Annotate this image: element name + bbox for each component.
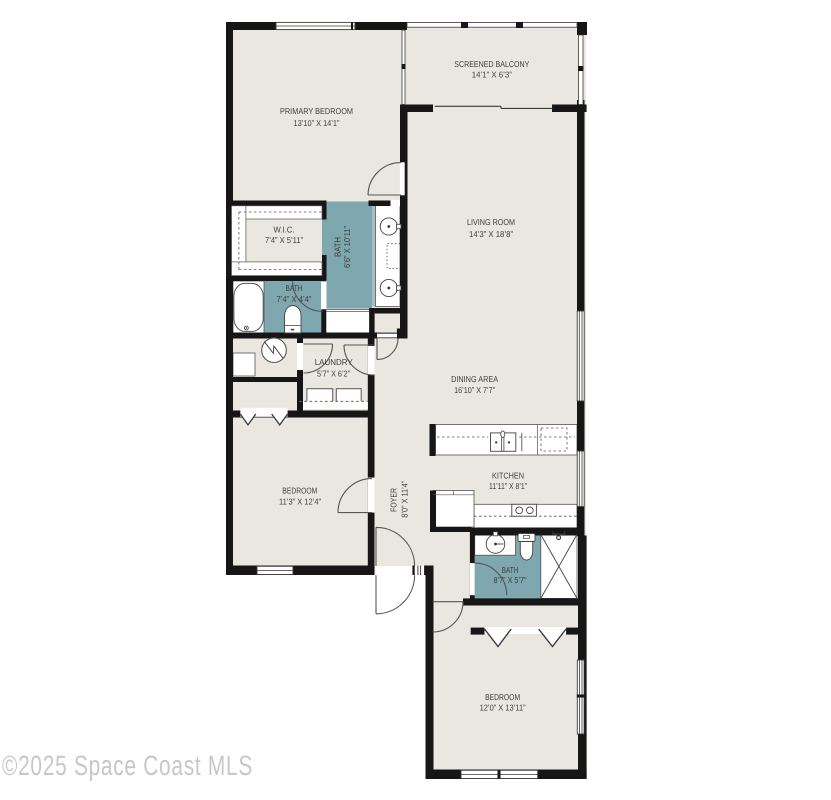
svg-text:PRIMARY BEDROOM: PRIMARY BEDROOM xyxy=(280,106,353,116)
svg-text:BEDROOM: BEDROOM xyxy=(485,692,520,702)
svg-text:14’3” X 18’8”: 14’3” X 18’8” xyxy=(469,229,513,239)
svg-text:KITCHEN: KITCHEN xyxy=(492,471,524,481)
svg-text:11’11” X 8’1”: 11’11” X 8’1” xyxy=(489,481,527,491)
svg-text:BATH: BATH xyxy=(502,565,519,575)
svg-text:6’6” X 10’11”: 6’6” X 10’11” xyxy=(342,226,352,268)
svg-text:5’7” X 6’2”: 5’7” X 6’2” xyxy=(317,368,350,378)
svg-text:BEDROOM: BEDROOM xyxy=(282,486,317,496)
svg-text:8’0” X 11’4”: 8’0” X 11’4” xyxy=(400,481,410,518)
svg-text:7’4” X 5’11”: 7’4” X 5’11” xyxy=(265,235,303,245)
svg-text:LAUNDRY: LAUNDRY xyxy=(315,357,353,367)
svg-text:7’4” X 4’4”: 7’4” X 4’4” xyxy=(277,294,312,304)
svg-text:8’7” X 5’7”: 8’7” X 5’7” xyxy=(494,575,527,585)
svg-text:13’10” X 14’1”: 13’10” X 14’1” xyxy=(294,118,340,128)
svg-text:14’1” X 6’3”: 14’1” X 6’3” xyxy=(472,70,512,80)
svg-text:12’0” X 13’11”: 12’0” X 13’11” xyxy=(480,703,526,713)
svg-text:W.I.C.: W.I.C. xyxy=(274,225,295,235)
svg-text:11’3” X 12’4”: 11’3” X 12’4” xyxy=(279,496,321,506)
svg-text:SCREENED BALCONY: SCREENED BALCONY xyxy=(454,59,529,69)
svg-text:FOYER: FOYER xyxy=(389,488,399,512)
svg-text:LIVING ROOM: LIVING ROOM xyxy=(467,217,515,227)
svg-text:©2025 Space Coast MLS: ©2025 Space Coast MLS xyxy=(2,750,253,781)
svg-text:BATH: BATH xyxy=(286,283,303,293)
svg-text:DINING AREA: DINING AREA xyxy=(451,374,498,384)
svg-text:16’10” X 7’7”: 16’10” X 7’7” xyxy=(454,385,495,395)
svg-text:BATH: BATH xyxy=(333,237,343,257)
